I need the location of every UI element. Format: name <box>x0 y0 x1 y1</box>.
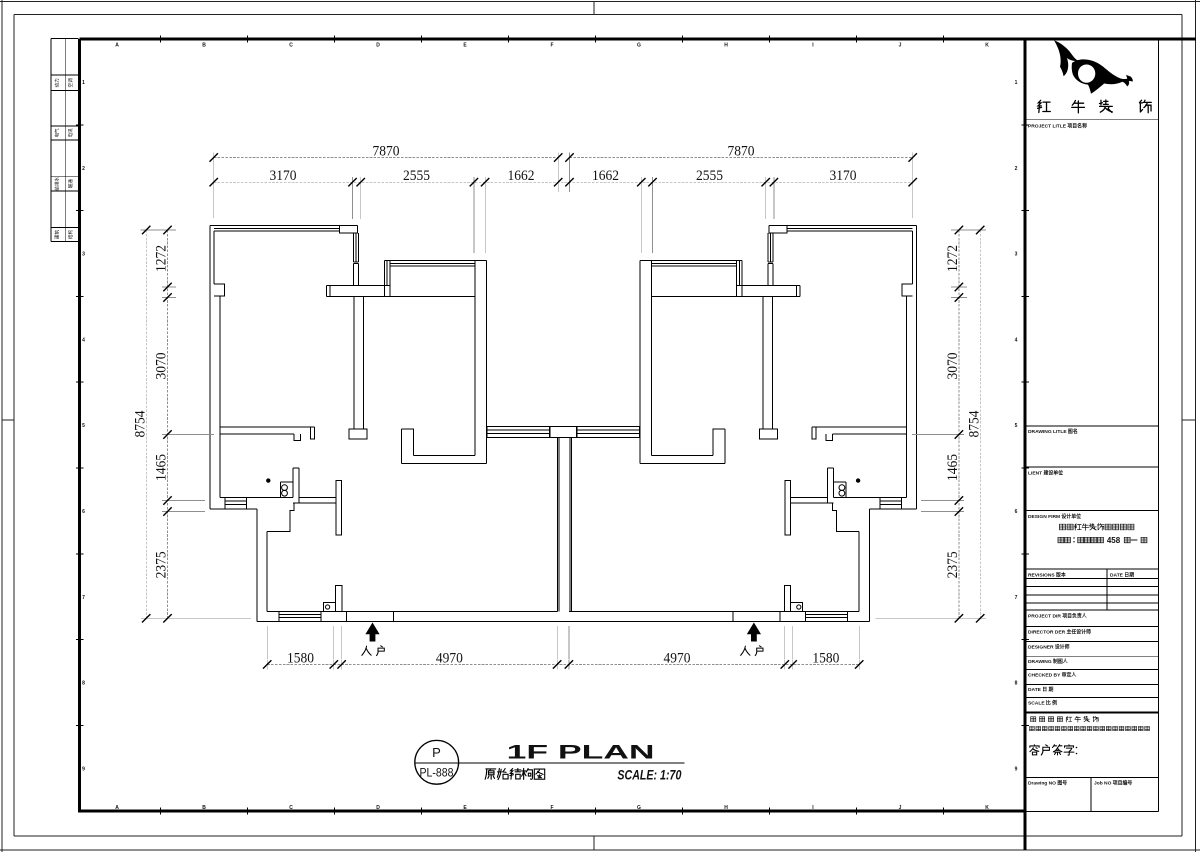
svg-text:DRAWING 制图人: DRAWING 制图人 <box>1028 658 1068 665</box>
svg-text:8754: 8754 <box>967 410 983 438</box>
svg-text:D: D <box>376 43 380 49</box>
svg-text:C: C <box>289 43 293 49</box>
svg-text:PROJECT LITLE 项目名称: PROJECT LITLE 项目名称 <box>1028 123 1087 130</box>
svg-text:J: J <box>899 805 902 811</box>
svg-text:7870: 7870 <box>373 143 400 159</box>
svg-text:B: B <box>202 43 206 49</box>
svg-text:2375: 2375 <box>945 551 961 578</box>
svg-text:DRAWING LITLE 图名: DRAWING LITLE 图名 <box>1028 428 1078 435</box>
svg-text:D: D <box>376 805 380 811</box>
svg-text:PROJECT DIR 项目负责人: PROJECT DIR 项目负责人 <box>1028 613 1087 620</box>
svg-text:1580: 1580 <box>287 650 314 666</box>
svg-text:DATE 日 期: DATE 日 期 <box>1028 686 1054 693</box>
svg-text:动力: 动力 <box>53 78 60 88</box>
svg-text:PL-888: PL-888 <box>420 768 454 780</box>
svg-text:4: 4 <box>82 337 85 343</box>
svg-text:3170: 3170 <box>270 168 297 184</box>
svg-text:1F PLAN: 1F PLAN <box>507 742 655 764</box>
svg-text:G: G <box>637 805 641 811</box>
svg-text:4970: 4970 <box>664 650 691 666</box>
svg-text:2375: 2375 <box>154 551 170 578</box>
svg-text:1272: 1272 <box>154 245 170 272</box>
svg-text:7870: 7870 <box>728 143 755 159</box>
svg-text:3170: 3170 <box>830 168 857 184</box>
svg-text:H: H <box>724 805 728 811</box>
svg-text:6: 6 <box>82 509 85 515</box>
svg-text:H: H <box>724 43 728 49</box>
svg-text:DESIGN FIRM 设计单位: DESIGN FIRM 设计单位 <box>1028 513 1081 520</box>
svg-text:K: K <box>985 43 989 49</box>
svg-text:B: B <box>202 805 206 811</box>
svg-text:8: 8 <box>82 681 85 687</box>
svg-text:空调: 空调 <box>67 78 74 88</box>
svg-text:5: 5 <box>1015 423 1018 429</box>
svg-text:1662: 1662 <box>592 168 619 184</box>
svg-text:1465: 1465 <box>945 454 961 481</box>
svg-text:6: 6 <box>1015 509 1018 515</box>
svg-text:7: 7 <box>82 595 85 601</box>
svg-text:Drawing NO 图号: Drawing NO 图号 <box>1028 780 1067 787</box>
svg-text:5: 5 <box>82 423 85 429</box>
svg-text:3: 3 <box>82 252 85 258</box>
svg-text:C: C <box>289 805 293 811</box>
svg-text:给排水: 给排水 <box>53 176 60 190</box>
svg-text:SCALE 比 例: SCALE 比 例 <box>1028 700 1057 707</box>
svg-text:7: 7 <box>1015 595 1018 601</box>
svg-text:DIRECTOR DER 主任设计师: DIRECTOR DER 主任设计师 <box>1028 629 1091 636</box>
svg-text:9: 9 <box>82 766 85 772</box>
svg-text:电讯: 电讯 <box>67 128 74 138</box>
svg-text:DESIGNER 设计师: DESIGNER 设计师 <box>1028 644 1070 651</box>
svg-text:P: P <box>432 745 441 760</box>
svg-text:CHECKED BY 审定人: CHECKED BY 审定人 <box>1028 672 1076 679</box>
svg-text:建筑: 建筑 <box>53 230 60 240</box>
svg-text:K: K <box>985 805 989 811</box>
svg-text:A: A <box>115 805 119 811</box>
svg-text:4970: 4970 <box>436 650 463 666</box>
svg-text:1465: 1465 <box>154 454 170 481</box>
svg-text:DATE 日期: DATE 日期 <box>1110 572 1134 579</box>
svg-text:LIENT 建设单位: LIENT 建设单位 <box>1028 470 1063 477</box>
svg-text:结构: 结构 <box>67 230 74 240</box>
svg-text:2555: 2555 <box>696 168 723 184</box>
svg-text:1: 1 <box>1015 80 1018 86</box>
svg-text:3070: 3070 <box>945 353 961 380</box>
svg-text:A: A <box>115 43 119 49</box>
svg-text:2555: 2555 <box>403 168 430 184</box>
svg-text:4: 4 <box>1015 337 1018 343</box>
svg-text:Job NO 项目编号: Job NO 项目编号 <box>1094 780 1132 787</box>
svg-text:8754: 8754 <box>133 410 149 438</box>
svg-text:2: 2 <box>82 166 85 172</box>
svg-text:458: 458 <box>1107 536 1121 545</box>
svg-text:电气: 电气 <box>53 128 59 138</box>
svg-text:3: 3 <box>1015 252 1018 258</box>
svg-text:8: 8 <box>1015 681 1018 687</box>
svg-text:F: F <box>550 43 553 49</box>
svg-text:1: 1 <box>82 80 85 86</box>
svg-text:1580: 1580 <box>812 650 839 666</box>
svg-text:2: 2 <box>1015 166 1018 172</box>
svg-text:暖通: 暖通 <box>67 179 74 189</box>
svg-text:SCALE: 1:70: SCALE: 1:70 <box>617 768 681 783</box>
svg-text:9: 9 <box>1015 766 1018 772</box>
svg-text:J: J <box>899 43 902 49</box>
svg-text:F: F <box>550 805 553 811</box>
svg-text:1662: 1662 <box>508 168 535 184</box>
svg-text:REVISIONS 版本: REVISIONS 版本 <box>1028 572 1066 579</box>
svg-text:G: G <box>637 43 641 49</box>
svg-text:3070: 3070 <box>154 353 170 380</box>
svg-text:1272: 1272 <box>945 245 961 272</box>
